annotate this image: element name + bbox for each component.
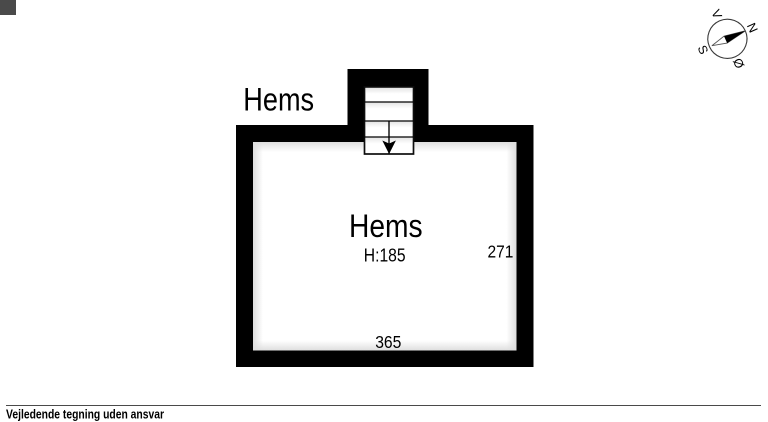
svg-text:Hems: Hems xyxy=(349,208,423,244)
svg-text:271: 271 xyxy=(488,242,514,262)
svg-text:H:185: H:185 xyxy=(364,244,406,265)
svg-text:Hems: Hems xyxy=(243,82,314,118)
svg-text:Vejledende tegning uden ansvar: Vejledende tegning uden ansvar xyxy=(6,407,164,422)
svg-text:365: 365 xyxy=(375,332,401,352)
